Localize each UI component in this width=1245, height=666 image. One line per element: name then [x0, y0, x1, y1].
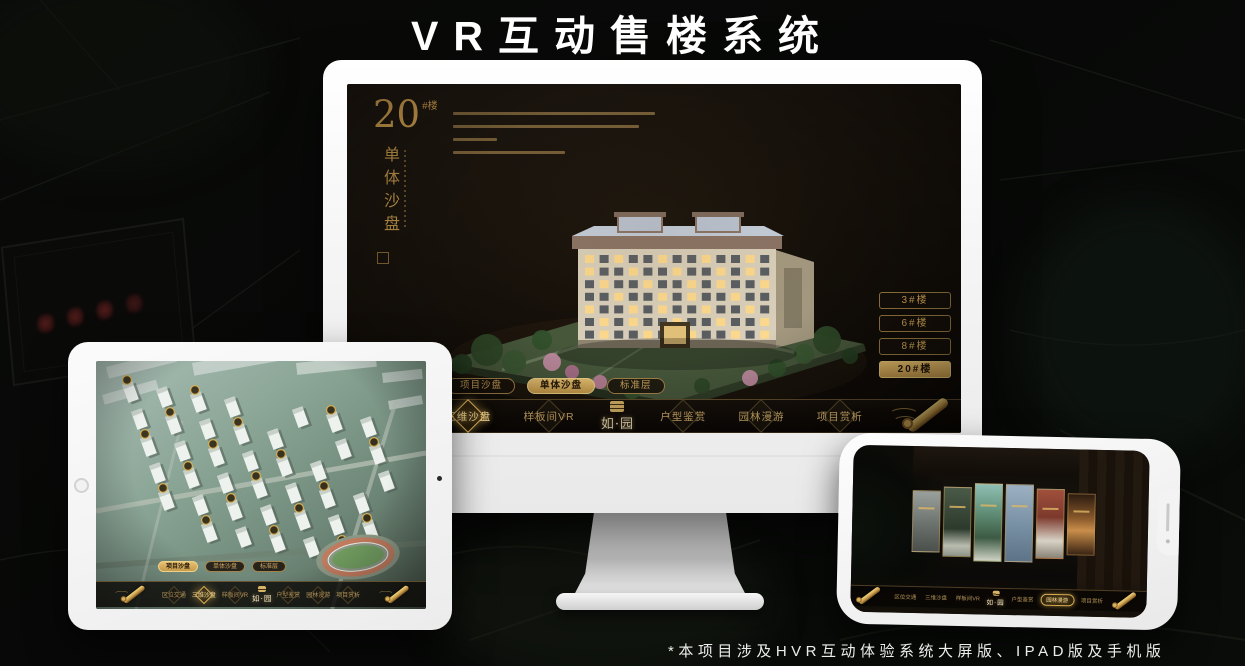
building-window: [687, 255, 696, 263]
building-window: [702, 331, 711, 339]
building-window: [673, 268, 682, 276]
description-line: [453, 151, 565, 154]
building-button-group: 3#楼 6#楼 8#楼 20#楼: [879, 292, 951, 378]
building-window: [614, 293, 623, 301]
building-marker[interactable]: [202, 516, 211, 525]
building-window: [629, 255, 638, 263]
phone-nav-garden-roam[interactable]: 园林漫游: [1040, 594, 1074, 607]
building-window: [658, 268, 667, 276]
building-button-20[interactable]: 20#楼: [879, 361, 951, 378]
tablet-nav-showroom-vr[interactable]: 样板间VR: [220, 588, 250, 601]
building-window: [614, 305, 623, 313]
building-marker[interactable]: [159, 484, 168, 493]
scroll-curl: [902, 418, 913, 429]
building-window: [702, 255, 711, 263]
building-window: [600, 293, 609, 301]
building-marker[interactable]: [227, 494, 236, 503]
page-title: VR互动售楼系统: [0, 2, 1245, 62]
building-window: [746, 318, 755, 326]
phone-speaker: [1166, 503, 1169, 531]
building-window: [600, 268, 609, 276]
seal-icon: [610, 401, 624, 412]
nav-item-garden-roam[interactable]: 园林漫游: [732, 405, 790, 428]
building-mass: [572, 212, 814, 348]
nav-item-project-gallery[interactable]: 项目赏析: [811, 405, 869, 428]
phone-nav-location[interactable]: 区位交通: [892, 591, 918, 604]
building-window: [731, 268, 740, 276]
tablet-nav-garden-roam[interactable]: 园林漫游: [304, 588, 332, 601]
building-window: [643, 268, 652, 276]
brand-logo-text: 如·园: [601, 413, 634, 432]
building-window: [585, 255, 594, 263]
building-marker[interactable]: [141, 430, 150, 439]
building-window: [746, 268, 755, 276]
building-window: [673, 280, 682, 288]
building-window: [600, 318, 609, 326]
tablet-tab-standard-floor[interactable]: 标准层: [252, 561, 286, 572]
phone-notch: [1157, 489, 1180, 555]
building-window: [673, 293, 682, 301]
phone-nav-3d-sandbox[interactable]: 三维沙盘: [923, 591, 949, 604]
building-button-8[interactable]: 8#楼: [879, 338, 951, 355]
building-illustration: [432, 172, 872, 402]
phone-nav-floorplans[interactable]: 户型鉴赏: [1009, 593, 1035, 606]
phone-ceiling-beam: [913, 446, 1104, 484]
building-marker[interactable]: [209, 440, 218, 449]
building-marker[interactable]: [123, 376, 132, 385]
building-window: [629, 280, 638, 288]
description-line: [453, 125, 639, 128]
description-lines: [453, 112, 655, 164]
building-window: [702, 268, 711, 276]
tablet-nav-floorplans[interactable]: 户型鉴赏: [274, 588, 302, 601]
building-marker[interactable]: [295, 504, 304, 513]
tab-project-sandbox[interactable]: 项目沙盘: [447, 378, 515, 394]
building-marker[interactable]: [184, 462, 193, 471]
block-number: 20: [373, 93, 420, 136]
building-window: [614, 331, 623, 339]
building-marker[interactable]: [252, 472, 261, 481]
building-window: [760, 305, 769, 313]
gallery-panel-landscape[interactable]: [973, 483, 1003, 562]
building-window: [585, 268, 594, 276]
building-marker[interactable]: [191, 386, 200, 395]
building-marker[interactable]: [327, 406, 336, 415]
tablet-camera: [437, 476, 442, 481]
building-window: [716, 318, 725, 326]
building-window: [702, 318, 711, 326]
building-button-6[interactable]: 6#楼: [879, 315, 951, 332]
building-window: [600, 305, 609, 313]
building-window: [629, 268, 638, 276]
brand-logo-text: 如·园: [252, 593, 272, 604]
building-window: [673, 305, 682, 313]
building-button-3[interactable]: 3#楼: [879, 292, 951, 309]
building-window: [585, 280, 594, 288]
phone-screen: 区位交通 三维沙盘 样板间VR 如·园 户型鉴赏 园林漫游 项目赏析: [850, 445, 1149, 618]
building-window: [716, 293, 725, 301]
gallery-panel-garden[interactable]: [942, 487, 971, 558]
tab-single-sandbox[interactable]: 单体沙盘: [527, 378, 595, 394]
building-window: [600, 255, 609, 263]
building-window: [658, 305, 667, 313]
building-window: [716, 331, 725, 339]
building-window: [702, 305, 711, 313]
building-window: [614, 255, 623, 263]
tablet-nav-location[interactable]: 区位交通: [160, 588, 188, 601]
block-seal: [377, 252, 389, 264]
phone-device: 区位交通 三维沙盘 样板间VR 如·园 户型鉴赏 园林漫游 项目赏析: [836, 432, 1181, 630]
building-window: [702, 293, 711, 301]
phone-nav-showroom-vr[interactable]: 样板间VR: [954, 592, 982, 605]
building-window: [760, 268, 769, 276]
monitor-stand: [573, 513, 747, 597]
gallery-panel-interior[interactable]: [1067, 493, 1096, 556]
building-window: [746, 293, 755, 301]
building-window: [687, 293, 696, 301]
tablet-brand-logo[interactable]: 如·园: [252, 586, 272, 604]
tablet-tab-single-sandbox[interactable]: 单体沙盘: [205, 561, 245, 572]
building-window: [614, 268, 623, 276]
block-subtitle-en-hint: [404, 150, 406, 228]
gallery-panel-building[interactable]: [1004, 484, 1034, 563]
nav-item-floorplans[interactable]: 户型鉴赏: [654, 405, 712, 428]
building-window: [643, 255, 652, 263]
tablet-nav-project-gallery[interactable]: 项目赏析: [334, 588, 362, 601]
seal-icon: [258, 586, 266, 592]
building-window: [716, 268, 725, 276]
gallery-panel-courtyard[interactable]: [912, 490, 941, 553]
building-window: [643, 293, 652, 301]
building-window: [658, 280, 667, 288]
building-window: [643, 305, 652, 313]
building-window: [687, 268, 696, 276]
tablet-tab-project-sandbox[interactable]: 项目沙盘: [158, 561, 198, 572]
block-number-suffix: #楼: [422, 101, 438, 112]
building-window: [687, 280, 696, 288]
phone-nav-project-gallery[interactable]: 项目赏析: [1079, 594, 1105, 607]
gallery-panel-autumn[interactable]: [1035, 489, 1064, 560]
building-window: [673, 255, 682, 263]
description-line: [453, 138, 497, 141]
building-window: [600, 280, 609, 288]
building-window: [760, 331, 769, 339]
building-window: [585, 331, 594, 339]
tablet-nav-3d-sandbox[interactable]: 三维沙盘: [190, 588, 218, 601]
building-marker[interactable]: [166, 408, 175, 417]
building-window: [585, 305, 594, 313]
scroll-menu-icon[interactable]: [378, 586, 408, 603]
building-window: [643, 331, 652, 339]
building-window: [687, 305, 696, 313]
phone-brand-logo[interactable]: 如·园: [986, 591, 1004, 607]
building-window: [614, 280, 623, 288]
building-window: [658, 293, 667, 301]
building-window: [760, 255, 769, 263]
building-window: [746, 305, 755, 313]
building-window: [629, 293, 638, 301]
tablet-navbar: 区位交通 三维沙盘 样板间VR 如·园 户型鉴赏 园林漫游 项目赏析: [96, 581, 426, 607]
scroll-menu-icon[interactable]: [889, 400, 947, 432]
tab-standard-floor[interactable]: 标准层: [607, 378, 665, 394]
building-window: [658, 255, 667, 263]
building-window: [643, 280, 652, 288]
scroll-menu-icon[interactable]: [1118, 593, 1136, 610]
block-title: 20#楼: [373, 96, 438, 133]
building-window: [731, 331, 740, 339]
building-window: [746, 280, 755, 288]
background-photo-hint: [1020, 200, 1245, 460]
building-marker[interactable]: [370, 438, 379, 447]
building-window: [716, 255, 725, 263]
scroll-menu-icon[interactable]: [114, 586, 144, 603]
building-window: [746, 255, 755, 263]
tablet-screen: 项目沙盘 单体沙盘 标准层 区位交通 三维沙盘 样板间VR 如·园 户型鉴赏: [96, 361, 426, 609]
building-window: [629, 305, 638, 313]
building-marker[interactable]: [270, 526, 279, 535]
building-window: [585, 293, 594, 301]
building-window: [760, 318, 769, 326]
scroll-menu-icon[interactable]: [862, 588, 880, 605]
seal-icon: [992, 591, 999, 596]
building-window: [731, 293, 740, 301]
building-window: [716, 305, 725, 313]
nav-item-showroom-vr[interactable]: 样板间VR: [518, 405, 581, 428]
building-window: [731, 280, 740, 288]
stage: VR互动售楼系统 *本项目涉及HVR互动体验系统大屏版、IPAD版及手机版 20…: [0, 0, 1245, 666]
sandbox-tab-group: 项目沙盘 单体沙盘 标准层: [447, 378, 665, 394]
building-window: [746, 331, 755, 339]
building-window: [760, 280, 769, 288]
brand-logo[interactable]: 如·园: [601, 401, 634, 432]
building-window: [760, 293, 769, 301]
building-window: [731, 305, 740, 313]
building-window: [585, 318, 594, 326]
tablet-home-button[interactable]: [74, 478, 89, 493]
building-window: [600, 331, 609, 339]
footnote: *本项目涉及HVR互动体验系统大屏版、IPAD版及手机版: [668, 640, 1165, 661]
building-window: [731, 318, 740, 326]
block-subtitle: 单体沙盘: [378, 146, 402, 238]
building-window: [731, 255, 740, 263]
description-line: [453, 112, 655, 115]
phone-camera: [1165, 539, 1170, 544]
building-marker[interactable]: [363, 514, 372, 523]
building-marker[interactable]: [234, 418, 243, 427]
monitor-stand-base: [556, 593, 764, 610]
building-window: [716, 280, 725, 288]
building-window: [614, 318, 623, 326]
building-window: [643, 318, 652, 326]
building-window: [702, 280, 711, 288]
building-window: [629, 331, 638, 339]
tablet-device: 项目沙盘 单体沙盘 标准层 区位交通 三维沙盘 样板间VR 如·园 户型鉴赏: [68, 342, 452, 630]
tablet-tab-group: 项目沙盘 单体沙盘 标准层: [158, 561, 286, 572]
building-window: [629, 318, 638, 326]
building-marker[interactable]: [277, 450, 286, 459]
building-marker[interactable]: [320, 482, 329, 491]
brand-logo-text: 如·园: [986, 597, 1004, 607]
